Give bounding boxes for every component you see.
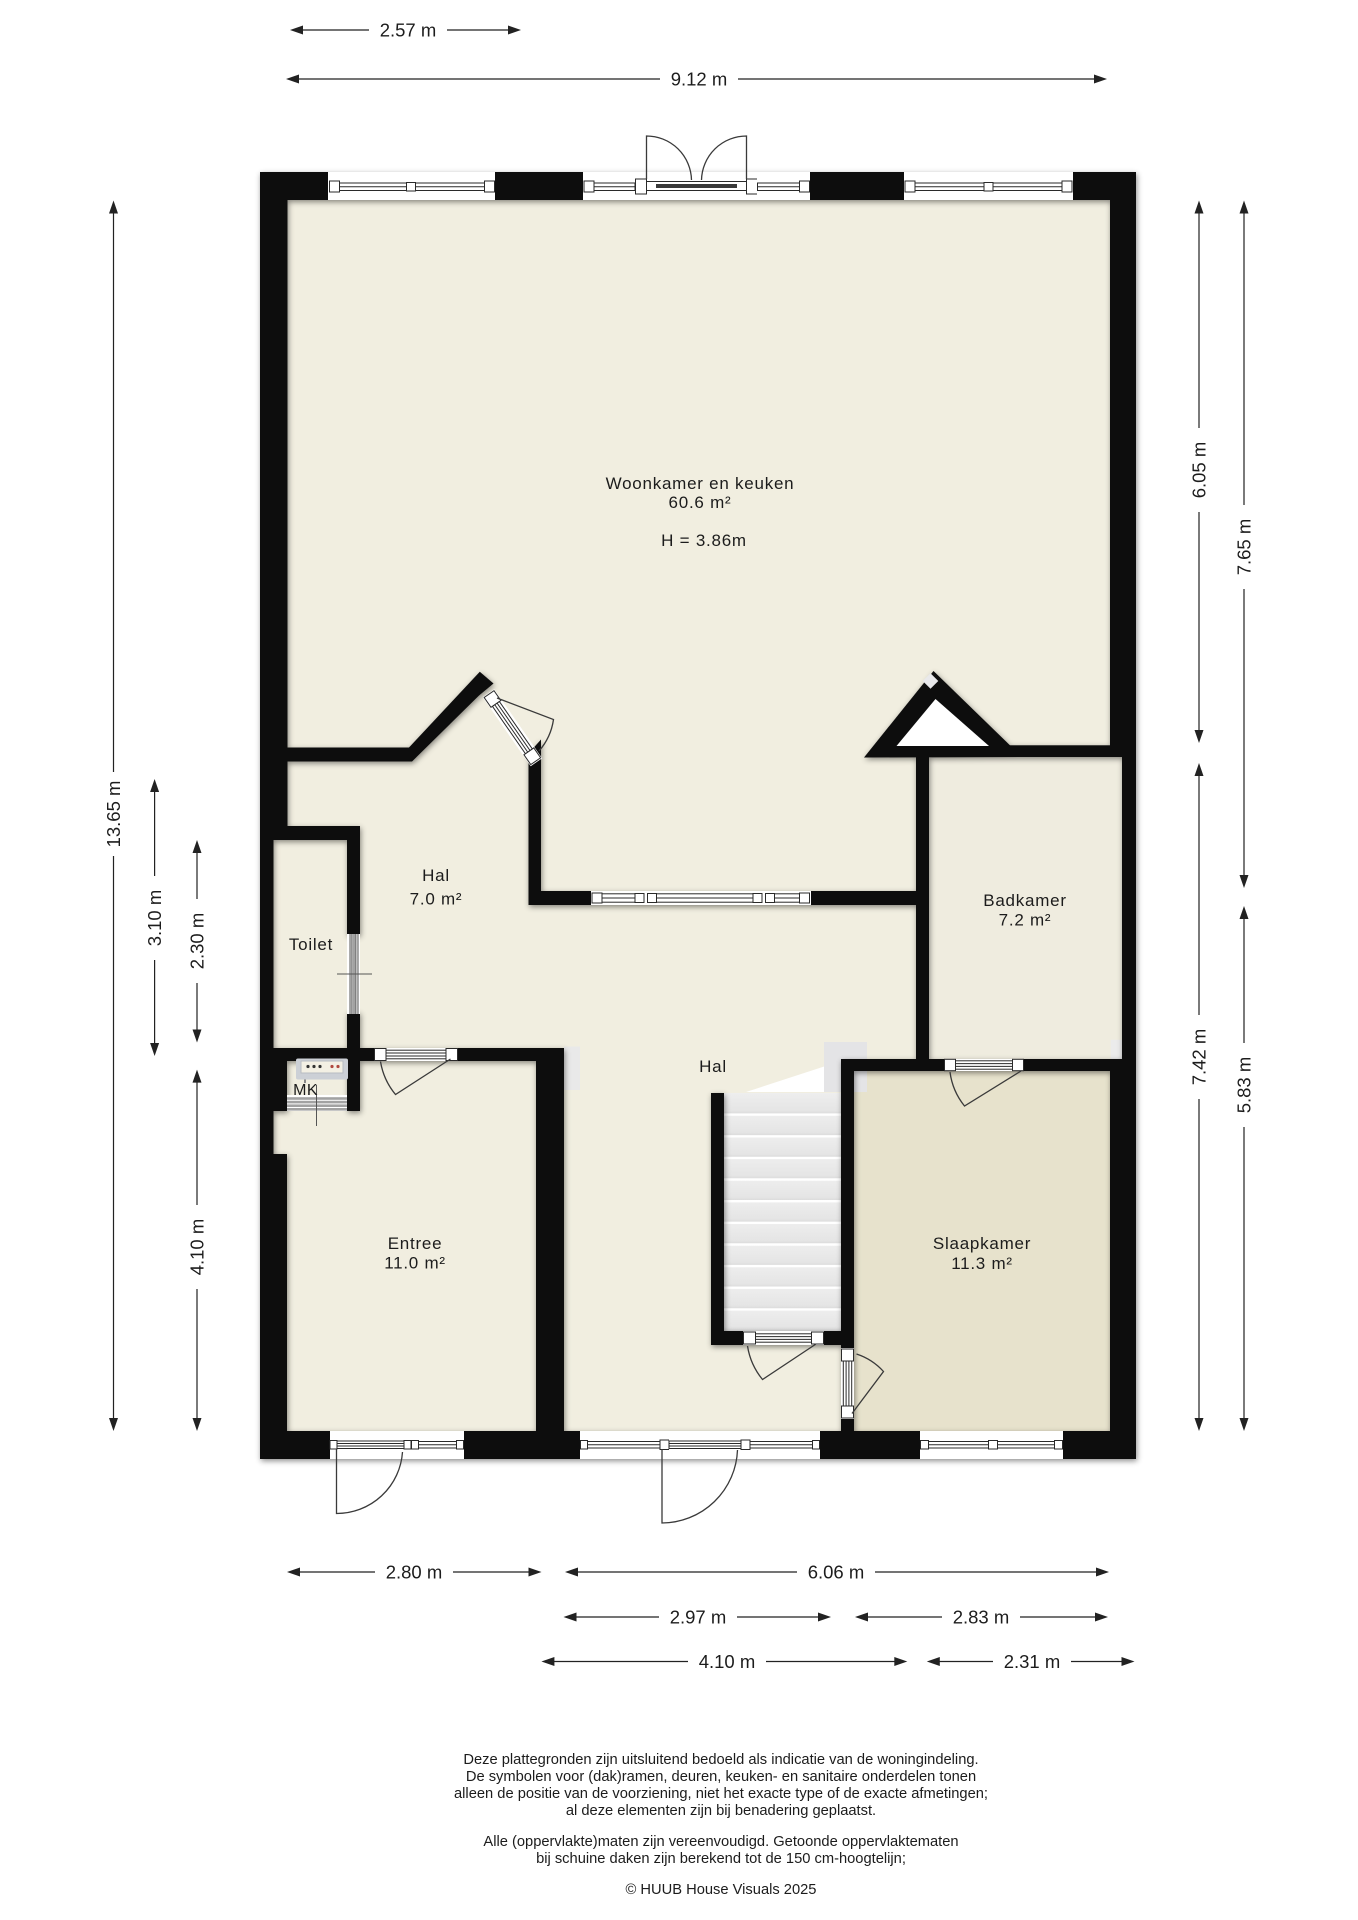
- svg-text:11.0 m²: 11.0 m²: [384, 1254, 446, 1273]
- svg-text:2.80 m: 2.80 m: [386, 1562, 443, 1583]
- svg-text:MK: MK: [293, 1082, 318, 1099]
- svg-text:bij schuine daken zijn bereken: bij schuine daken zijn berekend tot de 1…: [536, 1851, 906, 1867]
- svg-text:al deze elementen zijn bij ben: al deze elementen zijn bij benadering ge…: [566, 1803, 876, 1819]
- svg-text:Alle (oppervlakte)maten zijn v: Alle (oppervlakte)maten zijn vereenvoudi…: [483, 1834, 958, 1850]
- svg-text:5.83 m: 5.83 m: [1234, 1057, 1255, 1114]
- svg-text:De symbolen voor (dak)ramen, d: De symbolen voor (dak)ramen, deuren, keu…: [466, 1769, 976, 1785]
- svg-text:Entree: Entree: [388, 1234, 443, 1253]
- svg-text:Woonkamer en keuken: Woonkamer en keuken: [606, 474, 795, 493]
- svg-text:60.6 m²: 60.6 m²: [669, 493, 732, 512]
- svg-text:3.10 m: 3.10 m: [144, 890, 165, 947]
- svg-text:4.10 m: 4.10 m: [699, 1651, 756, 1672]
- svg-text:2.30 m: 2.30 m: [187, 913, 208, 970]
- svg-text:7.0 m²: 7.0 m²: [410, 890, 463, 909]
- svg-text:2.97 m: 2.97 m: [670, 1607, 727, 1628]
- svg-text:2.57 m: 2.57 m: [380, 20, 437, 41]
- svg-text:2.31 m: 2.31 m: [1004, 1651, 1061, 1672]
- svg-text:6.06 m: 6.06 m: [808, 1562, 865, 1583]
- svg-text:4.10 m: 4.10 m: [187, 1219, 208, 1276]
- svg-text:Deze plattegronden zijn uitslu: Deze plattegronden zijn uitsluitend bedo…: [463, 1752, 978, 1768]
- svg-text:6.05 m: 6.05 m: [1189, 442, 1210, 499]
- svg-text:alleen de positie van de voorz: alleen de positie van de voorziening, ni…: [454, 1786, 988, 1802]
- svg-text:© HUUB House Visuals 2025: © HUUB House Visuals 2025: [626, 1882, 817, 1898]
- svg-text:7.65 m: 7.65 m: [1234, 519, 1255, 576]
- svg-text:Toilet: Toilet: [289, 935, 333, 954]
- svg-text:9.12 m: 9.12 m: [671, 69, 728, 90]
- svg-text:Hal: Hal: [422, 866, 450, 885]
- svg-text:Hal: Hal: [699, 1057, 727, 1076]
- svg-text:2.83 m: 2.83 m: [953, 1607, 1010, 1628]
- svg-text:Slaapkamer: Slaapkamer: [933, 1234, 1031, 1253]
- svg-text:13.65 m: 13.65 m: [103, 781, 124, 848]
- svg-text:11.3 m²: 11.3 m²: [951, 1254, 1013, 1273]
- svg-text:Badkamer: Badkamer: [983, 891, 1066, 910]
- svg-text:7.42 m: 7.42 m: [1189, 1029, 1210, 1086]
- svg-text:H = 3.86m: H = 3.86m: [661, 531, 747, 550]
- svg-text:7.2 m²: 7.2 m²: [999, 911, 1052, 930]
